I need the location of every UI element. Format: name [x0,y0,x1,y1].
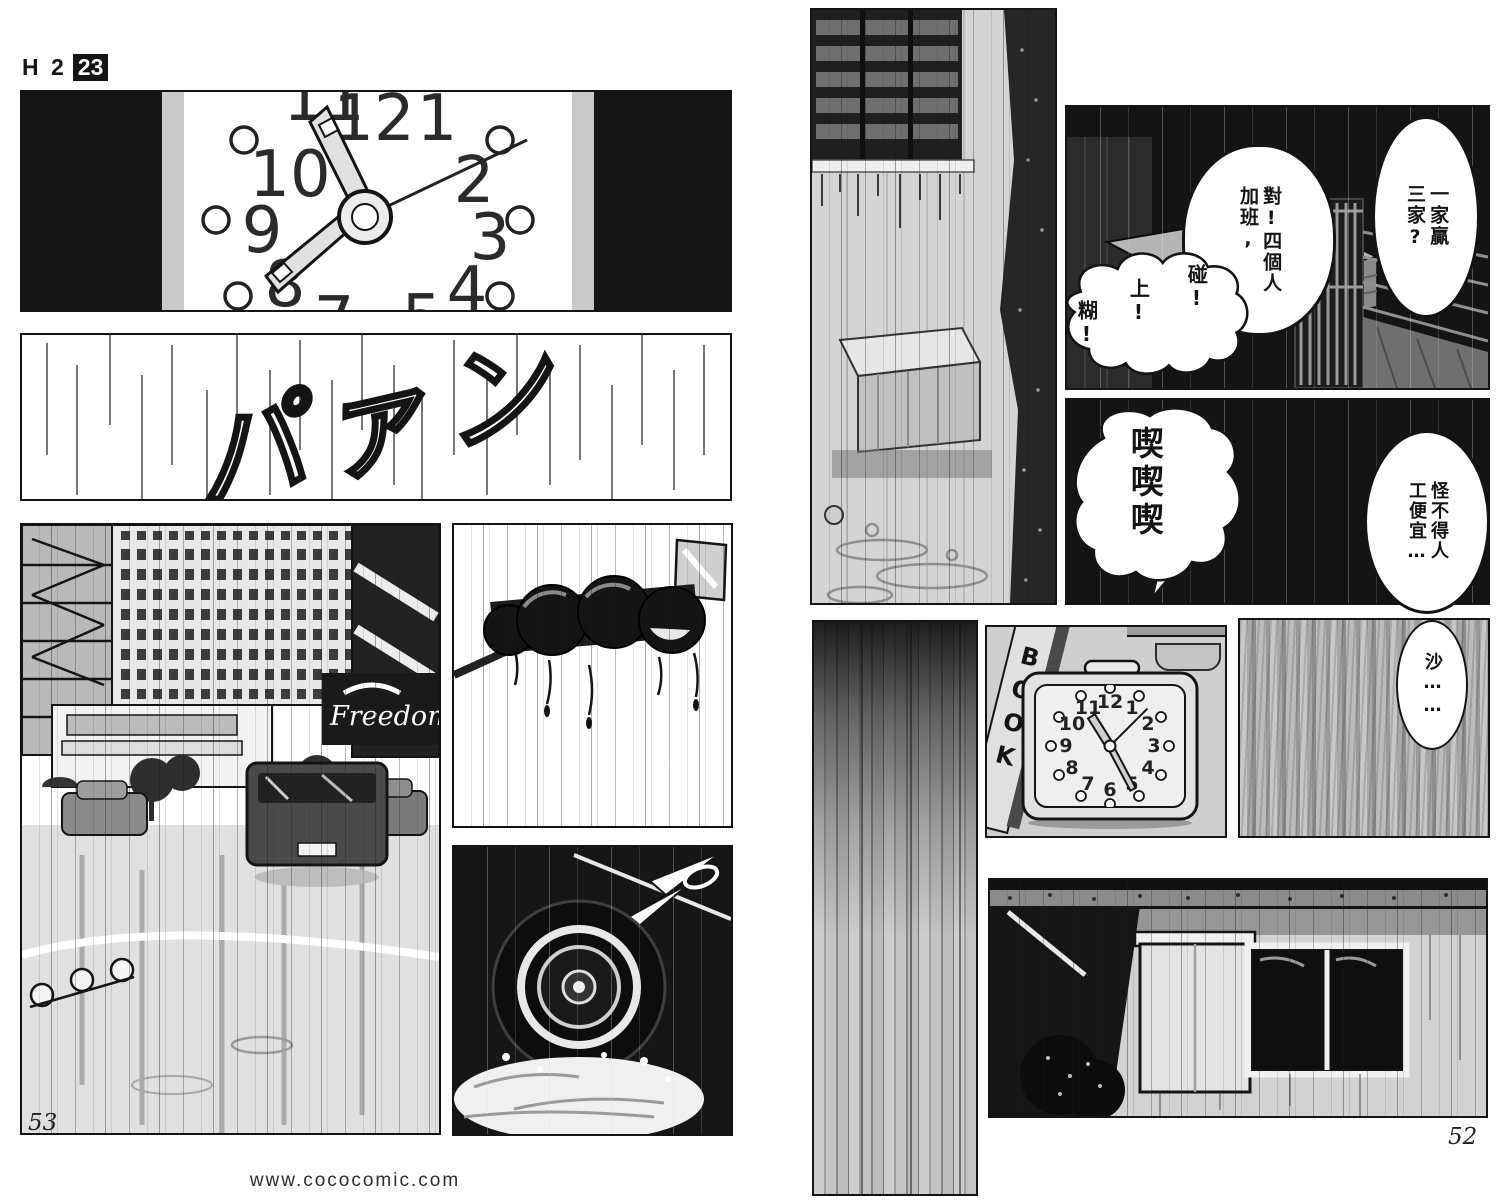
panel-sfx-slam: パァン [20,333,732,501]
freedom-sign-text: Freedom [329,701,439,732]
page-number-left: 53 [28,1110,57,1136]
panel-car-wheel [452,845,733,1136]
bubble-rustle-text: 沙…… [1421,652,1443,718]
svg-text:6: 6 [1103,779,1116,801]
signal-hoods [484,576,705,655]
manga-spread: { "header": {"title": "H 2", "volume_bad… [0,0,1500,1200]
title-text: H 2 [22,54,67,80]
svg-text:10: 10 [249,138,330,212]
svg-text:8: 8 [1065,757,1078,779]
rain-lines-art: パァン [22,335,730,499]
svg-text:1: 1 [417,92,458,156]
traffic-light-art [454,525,731,826]
night-house-art [990,880,1486,1116]
site-watermark: www.cococomic.com [240,1170,470,1192]
svg-text:4: 4 [447,254,488,310]
speech-bubble-cheap-labor: 怪不得人 工便宜… [1364,430,1490,614]
volume-badge: 23 [73,54,109,81]
svg-text:4: 4 [1141,757,1154,779]
louver-window [812,10,974,172]
bubble-hu-text: 糊! [1074,300,1098,348]
wood-wall-texture [814,622,976,1194]
speech-bubble-rustle: 沙…… [1396,620,1468,750]
wheel [493,901,665,1073]
bubble-giggle-text: 喫喫喫 [1124,426,1164,540]
house-wall-art [812,10,1055,603]
panel-alarm-clock: BOOK 12 1 2 3 4 5 6 7 [985,625,1227,838]
svg-text:5: 5 [402,282,443,310]
shelf-edge [1127,627,1227,637]
square-alarm-clock: 12 1 2 3 4 5 6 7 8 9 10 11 [1015,655,1205,831]
svg-text:7: 7 [1081,773,1094,795]
wheel-art [454,847,731,1134]
speech-bubble-one-wins: 一家贏 三家? [1372,116,1480,318]
panel-house-wall [810,8,1057,605]
black-bar-right [594,92,730,310]
svg-text:7: 7 [314,284,355,310]
window [1248,946,1406,1074]
sfx-slam-text: パァン [180,335,578,499]
panel-clock-closeup: 11 12 1 2 3 4 5 7 8 9 10 [20,90,732,312]
svg-text:11: 11 [1075,697,1101,719]
step-box [840,328,980,452]
svg-text:2: 2 [1141,713,1154,735]
water-drips [515,653,698,715]
panel-traffic-light [452,523,733,828]
svg-text:9: 9 [1059,735,1072,757]
bubble-pong-text: 碰! [1184,264,1208,312]
page-number-right: 52 [1448,1124,1477,1150]
thought-cloud-mahjong-calls: 碰! 上! 糊! [1050,238,1255,378]
svg-text:3: 3 [1147,735,1160,757]
panel-striped-wall [812,620,978,1196]
thought-cloud-giggle: 喫喫喫 [1066,402,1246,602]
panel-city-street: Freedom [20,523,441,1135]
alarm-clock-illustration: 11 12 1 2 3 4 5 7 8 9 10 [22,92,730,310]
city-street-art: Freedom [22,525,439,1133]
bubble-up-text: 上! [1126,278,1150,326]
panel-night-house [988,878,1488,1118]
ball [825,506,843,524]
book-title: H 223 [22,54,108,81]
svg-text:1: 1 [1125,697,1138,719]
black-bar-left [22,92,162,310]
